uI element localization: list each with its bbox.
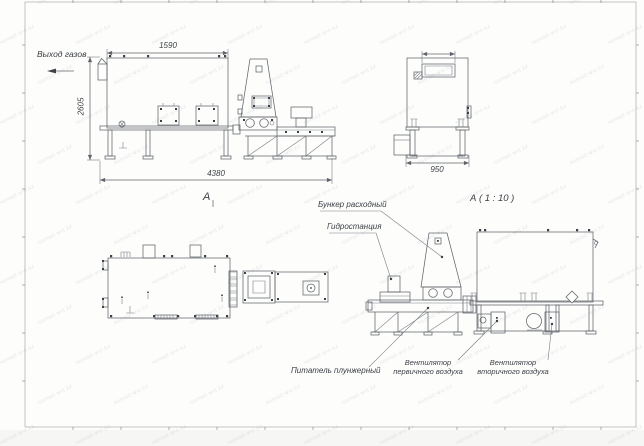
view-a-scale-label: А ( 1 : 10 ) [470,193,514,204]
gas-outlet-stub [98,59,107,81]
view-side-a [366,229,603,335]
dimension-4380-text: 4380 [198,169,234,178]
support-truss-a [371,312,462,335]
base-band [470,301,603,305]
dimension-1590-text: 1590 [150,41,186,50]
table-legs [105,130,231,159]
dimension-window [422,51,455,63]
end-body-outline [407,58,468,127]
furnace-body-outline [107,58,228,128]
label-hydro-station: Гидростанция [327,222,382,231]
view-end [394,51,471,158]
hopper-tower [238,59,276,117]
label-plunger-feeder: Питатель плунжерный [291,366,380,375]
bolt-dots-view1 [109,55,323,133]
support-truss [244,136,336,159]
label-secondary-fan: Вентилятор вторичного воздуха [472,358,554,376]
label-bunker: Бункер расходный [318,200,387,209]
label-secondary-fan-line1: Вентилятор [472,358,554,367]
plan-left-flanges [103,261,108,307]
drawing-page: { "drawing": { "labels": { "gas_outlet":… [0,0,644,430]
primary-air-fan [478,312,505,333]
conveyor-a [366,296,476,313]
furnace-bracket [593,239,598,248]
end-window [414,64,455,79]
plan-datum-marks [121,266,223,314]
feeder-body [233,117,277,134]
label-secondary-fan-line2: вторичного воздуха [472,367,554,376]
feeder-body-a [423,287,461,300]
leader-lines [320,211,553,367]
bolt-dots-view3 [102,255,326,317]
plan-bottom-strips [155,315,218,319]
end-side-box [394,135,410,155]
gas-flow-arrow [47,69,74,74]
dimension-2605-text: 2605 [77,89,86,125]
plan-body-outline [108,258,230,318]
dimension-950-text: 950 [419,165,455,174]
label-primary-fan-line2: первичного воздуха [388,367,468,376]
secondary-air-fan [527,312,560,332]
label-primary-fan-line1: Вентилятор [388,358,468,367]
view-a-label: А [203,191,210,203]
plan-feeder-housing [275,272,328,302]
label-primary-fan: Вентилятор первичного воздуха [388,358,468,376]
dimension-1590 [107,49,228,59]
plan-feeder-square [243,271,275,303]
hydro-station [380,276,410,302]
end-legs [406,127,469,158]
base-frame [474,305,596,334]
furnace-body-a [477,232,593,302]
hopper-tower-a [421,233,461,287]
view-plan [102,245,328,319]
plan-vent-grill [121,252,130,257]
label-gas-outlet: Выход газов [37,49,87,59]
anchor-bolts-end [411,119,465,127]
